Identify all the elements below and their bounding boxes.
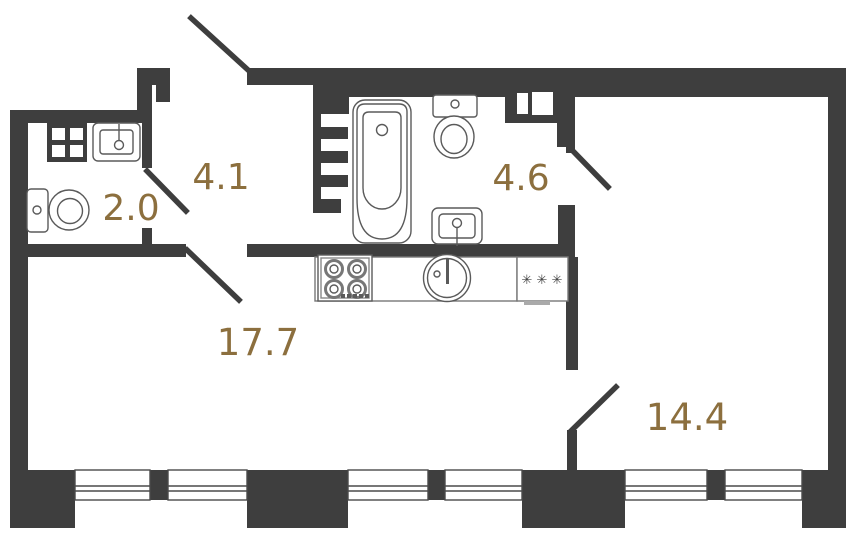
wall [557, 85, 575, 147]
wc-toilet [27, 189, 89, 232]
hall-door-swing [187, 250, 239, 300]
washer-grid [47, 123, 87, 162]
wall [558, 205, 575, 257]
wall [156, 85, 170, 102]
window [168, 470, 247, 500]
wall [10, 110, 152, 123]
kitchen-sink [424, 255, 471, 302]
window [348, 470, 428, 500]
bathtub [353, 100, 411, 243]
towel-ladder [313, 97, 349, 213]
wall-pier [428, 470, 445, 500]
wall [313, 68, 845, 97]
bathroom-door-swing [573, 151, 608, 187]
room-label-kitchen: 17.7 [217, 321, 299, 364]
entrance-door-swing [191, 18, 247, 69]
wall [142, 110, 152, 168]
bathroom-sink [432, 208, 482, 246]
window [725, 470, 802, 500]
wall [10, 244, 186, 257]
wall-pier [10, 470, 75, 528]
wall-pier [150, 470, 168, 500]
room-label-hall: 4.1 [192, 157, 249, 198]
wall-pier [707, 470, 725, 500]
room-label-bathroom: 4.6 [492, 158, 549, 199]
window [445, 470, 522, 500]
room-label-room: 14.4 [646, 396, 728, 439]
floor-plan: ✳ ✳ ✳ 2.0 4.1 4.6 17.7 14.4 [0, 0, 855, 542]
fridge-marks: ✳ ✳ ✳ [522, 273, 563, 288]
wall [137, 68, 152, 112]
wall-pier [522, 470, 625, 528]
wall [567, 430, 577, 470]
room-label-wc: 2.0 [102, 188, 159, 229]
wall [10, 110, 28, 470]
room-door-swing [572, 387, 616, 430]
window [625, 470, 707, 500]
wc-sink [93, 123, 140, 161]
wall [828, 68, 846, 470]
stove [318, 255, 372, 301]
wall [247, 244, 313, 257]
wall-pier [247, 470, 348, 528]
bathroom-toilet [433, 95, 477, 158]
vent-shaft-holes [517, 92, 553, 115]
wall [247, 68, 313, 85]
window [75, 470, 150, 500]
wall-pier [802, 470, 846, 528]
